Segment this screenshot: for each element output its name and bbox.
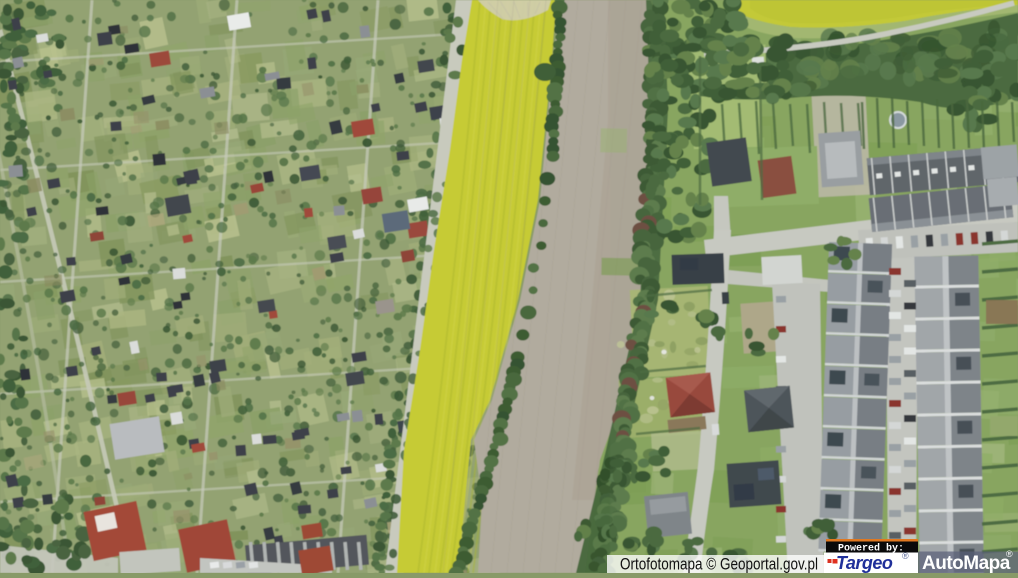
svg-text:®: ® bbox=[1006, 549, 1013, 559]
svg-text:Targeo: Targeo bbox=[836, 553, 893, 573]
svg-text:Ortofotomapa © Geoportal.gov.p: Ortofotomapa © Geoportal.gov.pl bbox=[620, 556, 818, 574]
svg-text:AutoMapa: AutoMapa bbox=[922, 553, 1011, 573]
svg-text:®: ® bbox=[902, 551, 909, 561]
